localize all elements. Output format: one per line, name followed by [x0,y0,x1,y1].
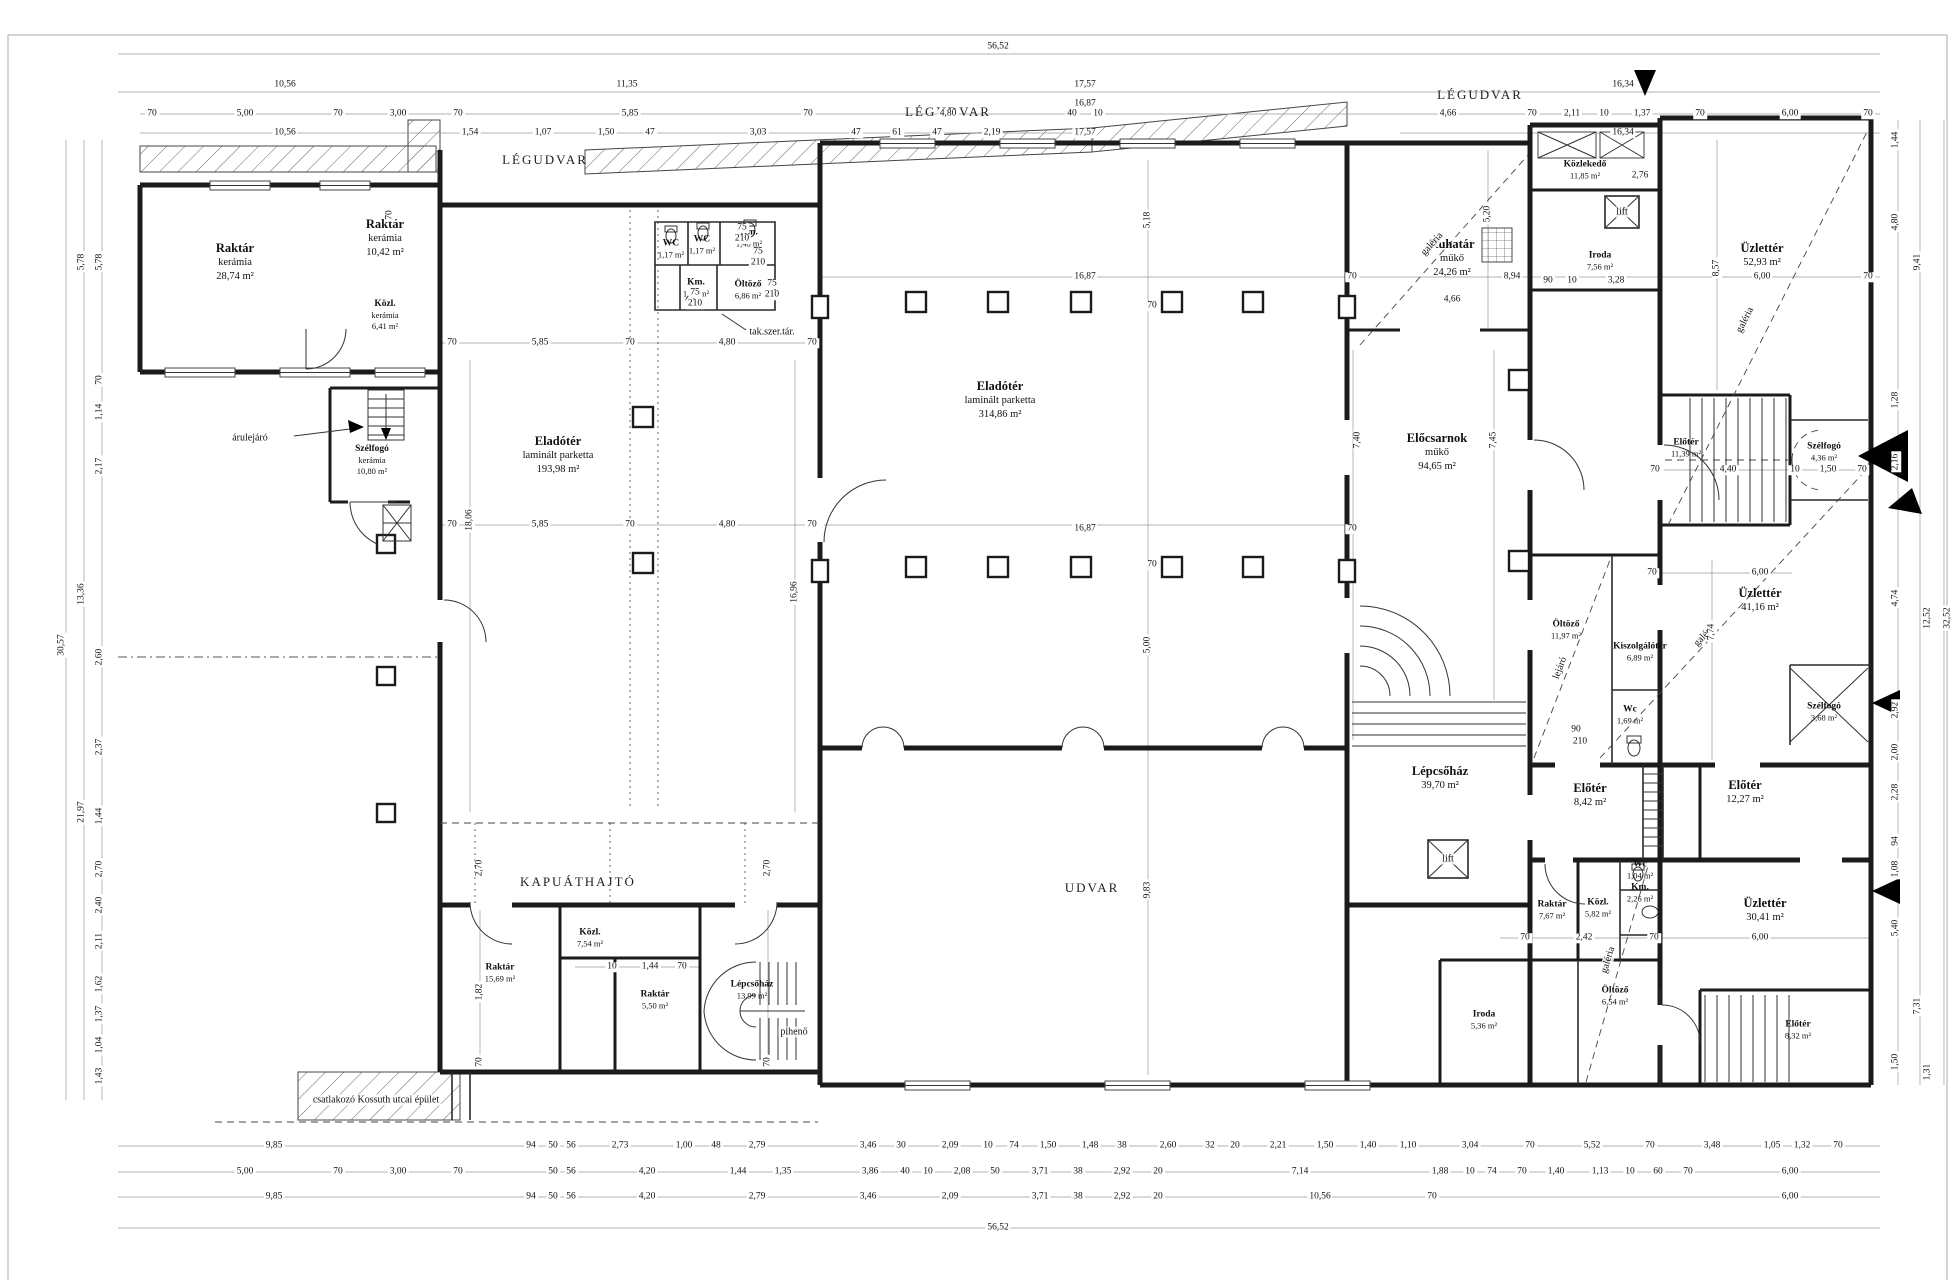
room-name: Közl. [577,926,603,938]
dimension-text: 5,52 [1582,1141,1603,1151]
room-label: Előtér12,27 m² [1726,777,1764,807]
room-name: Közl. [1585,896,1611,908]
dimension-text: 16,87 [1072,272,1097,282]
room-area: 8,42 m² [1573,796,1606,810]
dimension-text: 1,37 [1632,109,1653,119]
dimension-text: 70 [1861,272,1875,282]
dimension-text: 1,43 [95,1066,105,1087]
dimension-text: 1,37 [95,1004,105,1025]
room-name: Eladótér [965,378,1036,394]
dimension-text: 2,73 [610,1141,631,1151]
dimension-text: 5,78 [77,252,87,273]
room-label: Üzlettér52,93 m² [1740,240,1783,270]
room-label: Közlekedő11,85 m² [1564,158,1607,181]
dimension-text: 3,04 [1460,1141,1481,1151]
dimension-text: 5,18 [1143,210,1153,231]
room-name: Raktár [640,988,669,1000]
dimension-text: 1,32 [1792,1141,1813,1151]
room-area: 6,86 m² [735,291,762,302]
dimension-text: 10 [981,1141,995,1151]
dimension-text: 75 [688,288,702,298]
room-label: Raktár7,67 m² [1537,898,1566,921]
dimension-text: 10 [921,1167,935,1177]
dimension-text: 2,60 [95,647,105,668]
dimension-text: 70 [1647,933,1661,943]
room-name: Raktár [1537,898,1566,910]
room-label: Lépcsőház13,99 m² [731,978,774,1001]
dimension-text: 2,76 [1630,171,1651,181]
dimension-text: 70 [331,1167,345,1177]
room-area: 10,80 m² [355,466,389,477]
dimension-text: 1,10 [1398,1141,1419,1151]
dimension-text: 5,85 [530,338,551,348]
dimension-text: 10 [605,962,619,972]
room-name: Raktár [216,240,254,256]
dimension-text: 20 [1151,1167,1165,1177]
dimension-text: 20 [1228,1141,1242,1151]
dimension-text: 2,17 [95,456,105,477]
room-name: Előtér [1671,436,1701,448]
note-text: csatlakozó Kossuth utcai épület [311,1095,441,1106]
dimension-text: 32,52 [1943,605,1953,630]
dimension-text: 74 [1007,1141,1021,1151]
dimension-text: 70 [145,109,159,119]
dimension-text: 50 [988,1167,1002,1177]
room-label: Előtér8,42 m² [1573,780,1606,810]
zone-label: UDVAR [1065,880,1120,896]
dimension-text: 1,44 [640,962,661,972]
dimension-text: 70 [623,338,637,348]
dimension-text: 2,60 [1158,1141,1179,1151]
room-area: 5,36 m² [1471,1021,1497,1032]
dimension-text: 9,85 [264,1141,285,1151]
room-label: Öltöző6,54 m² [1602,984,1629,1007]
dimension-text: 1,40 [1546,1167,1567,1177]
dimension-text: 3,00 [388,1167,409,1177]
dimension-text: 38 [1071,1167,1085,1177]
dimension-text: 38 [1115,1141,1129,1151]
dimension-text: 70 [331,109,345,119]
note-text: lejáró [1550,654,1570,683]
dimension-text: 2,92 [1112,1167,1133,1177]
dimension-text: 6,00 [1780,1192,1801,1202]
dimension-text: 3,00 [388,109,409,119]
room-label: Wc1,04 m² [1627,858,1653,881]
room-label: Öltöző6,86 m² [735,278,762,301]
dimension-text: 70 [1643,1141,1657,1151]
dimension-text: 5,78 [95,252,105,273]
room-area: 24,26 m² [1429,266,1474,280]
dimension-text: 70 [1523,1141,1537,1151]
room-label: Előtér8,32 m² [1785,1018,1811,1041]
dimension-text: 50 [546,1192,560,1202]
dimension-text: 4,20 [637,1192,658,1202]
dimension-text: 3,03 [748,128,769,138]
dimension-text: 5,00 [1143,635,1153,656]
dimension-text: 5,00 [235,1167,256,1177]
dimension-text: 2,11 [1562,109,1582,119]
dimension-text: 50 [546,1141,560,1151]
room-material: kerámia [355,455,389,466]
room-area: 5,82 m² [1585,909,1611,920]
room-area: 314,86 m² [965,408,1036,422]
dimension-text: 1,48 [1080,1141,1101,1151]
dimension-text: 2,92 [1891,700,1901,721]
dimension-text: 2,19 [982,128,1003,138]
dimension-text: 6,00 [1780,109,1801,119]
dimension-text: 70 [475,1055,485,1069]
dimension-text: 3,46 [858,1192,879,1202]
dimension-text: 4,80 [1891,212,1901,233]
room-area: 28,74 m² [216,270,254,284]
dimension-text: 94 [524,1141,538,1151]
dimension-text: 70 [1345,272,1359,282]
dimension-text: 1,04 [95,1035,105,1056]
dimension-text: 1,13 [1590,1167,1611,1177]
dimension-text: 10 [1463,1167,1477,1177]
room-material: műkő [1429,252,1474,266]
room-label: Szélfogó3,68 m² [1807,700,1841,723]
dimension-text: 3,28 [1606,276,1627,286]
room-name: Előtér [1785,1018,1811,1030]
dimension-text: 16,87 [1072,524,1097,534]
room-name: Üzlettér [1740,240,1783,256]
room-area: 8,32 m² [1785,1031,1811,1042]
dimension-text: 56 [564,1167,578,1177]
room-label: Iroda5,36 m² [1471,1008,1497,1031]
room-label: Kiszolgálótér6,89 m² [1613,640,1667,663]
dimension-text: 70 [1345,524,1359,534]
room-name: Szélfogó [355,443,389,455]
room-label: Előcsarnokműkő94,65 m² [1407,430,1467,474]
dimension-text: 1,50 [1315,1141,1336,1151]
room-material: laminált parketta [523,449,594,463]
room-area: 2,26 m² [1627,894,1653,905]
dimension-text: 17,57 [1072,80,1097,90]
dimension-text: 10,56 [1307,1192,1332,1202]
dimension-text: 60 [1651,1167,1665,1177]
dimension-text: 1,40 [1358,1141,1379,1151]
room-label: Szélfogó4,36 m² [1807,440,1841,463]
dimension-text: 40 [898,1167,912,1177]
dimension-text: 11,35 [614,80,639,90]
room-area: 10,42 m² [366,246,404,260]
dimension-text: 2,40 [95,895,105,916]
dimension-text: 1,28 [1891,390,1901,411]
dimension-text: 47 [930,128,944,138]
dimension-text: 1,54 [460,128,481,138]
zone-label: LÉGUDVAR [1437,87,1523,103]
dimension-text: 2,00 [1891,742,1901,763]
dimension-text: 90 [1541,276,1555,286]
dimension-text: 1,62 [95,974,105,995]
dimension-text: 30,57 [57,632,67,657]
dimension-text: 6,00 [1750,933,1771,943]
room-material: kerámia [216,256,254,270]
dimension-text: 70 [451,1167,465,1177]
room-area: 94,65 m² [1407,460,1467,474]
dimension-text: 40 [1065,109,1079,119]
room-name: Előcsarnok [1407,430,1467,446]
room-label: Üzlettér41,16 m² [1738,585,1781,615]
dimension-text: 74 [1485,1167,1499,1177]
dimension-text: 3,48 [1702,1141,1723,1151]
dimension-text: 61 [890,128,904,138]
plan-labels: Raktárkerámia28,74 m²Raktárkerámia10,42 … [0,0,1955,1280]
room-label: Wc1,69 m² [1617,703,1643,726]
dimension-text: 4,80 [717,338,738,348]
dimension-text: 1,07 [533,128,554,138]
room-area: 6,89 m² [1613,653,1667,664]
note-text: pihenő [778,1027,809,1038]
dimension-text: 70 [1645,568,1659,578]
dimension-text: 16,34 [1610,80,1635,90]
dimension-text: 1,44 [1891,130,1901,151]
dimension-text: 38 [1071,1192,1085,1202]
dimension-text: 6,00 [1780,1167,1801,1177]
dimension-text: 3,71 [1030,1192,1051,1202]
dimension-text: 6,00 [1752,272,1773,282]
dimension-text: 56 [564,1192,578,1202]
dimension-text: 70 [1425,1192,1439,1202]
room-name: WC [658,237,684,249]
dimension-text: 56,52 [985,42,1010,52]
note-text: lift [1614,207,1630,218]
dimension-text: 10 [1623,1167,1637,1177]
room-area: 52,93 m² [1740,256,1783,270]
dimension-text: 210 [686,299,704,309]
dimension-text: 70 [445,338,459,348]
dimension-text: 47 [643,128,657,138]
dimension-text: 48 [709,1141,723,1151]
dimension-text: 4,66 [1438,109,1459,119]
room-label: Öltöző11,97 m² [1551,618,1581,641]
dimension-text: 70 [445,520,459,530]
room-label: Szélfogókerámia10,80 m² [355,443,389,477]
dimension-text: 21,97 [77,799,87,824]
dimension-text: 56,52 [985,1223,1010,1233]
room-name: Öltöző [1602,984,1629,996]
dimension-text: 9,85 [264,1192,285,1202]
dimension-text: 1,82 [475,982,485,1003]
room-name: Közl. [371,298,398,310]
dimension-text: 2,79 [747,1141,768,1151]
dimension-text: 1,88 [1430,1167,1451,1177]
dimension-text: 10 [1565,276,1579,286]
dimension-text: 70 [1693,109,1707,119]
dimension-text: 2,09 [940,1141,961,1151]
room-name: Üzlettér [1738,585,1781,601]
room-name: Öltöző [735,278,762,290]
dimension-text: 70 [1861,109,1875,119]
room-area: 6,54 m² [1602,997,1629,1008]
dimension-text: 1,50 [1891,1052,1901,1073]
dimension-text: 1,14 [95,402,105,423]
room-area: 7,67 m² [1537,911,1566,922]
room-material: kerámia [371,310,398,321]
dimension-text: 47 [849,128,863,138]
dimension-text: 70 [1145,560,1159,570]
room-area: 30,41 m² [1743,911,1786,925]
dimension-text: 7,74 [1707,622,1717,643]
room-name: Wc [1627,858,1653,870]
zone-label: LÉGUDVAR [502,152,588,168]
dimension-text: 2,21 [1268,1141,1289,1151]
dimension-text: 2,70 [95,859,105,880]
room-area: 1,69 m² [1617,716,1643,727]
room-name: Kiszolgálótér [1613,640,1667,652]
dimension-text: 4,40 [1718,465,1739,475]
dimension-text: 94 [524,1192,538,1202]
dimension-text: 7,40 [1353,430,1363,451]
dimension-text: 70 [1515,1167,1529,1177]
dimension-text: 10 [1091,109,1105,119]
room-area: 11,97 m² [1551,631,1581,642]
room-name: Lépcsőház [1412,763,1468,779]
room-label: Közl.5,82 m² [1585,896,1611,919]
room-area: 7,54 m² [577,939,603,950]
room-label: Eladótérlaminált parketta314,86 m² [965,378,1036,422]
dimension-text: 210 [749,258,767,268]
dimension-text: 70 [801,109,815,119]
room-name: Szélfogó [1807,700,1841,712]
dimension-text: 20 [1151,1192,1165,1202]
room-area: 6,41 m² [371,321,398,332]
dimension-text: 6,00 [1750,568,1771,578]
dimension-text: 210 [763,290,781,300]
dimension-text: 70 [1525,109,1539,119]
room-name: Üzlettér [1743,895,1786,911]
dimension-text: 70 [385,208,395,222]
dimension-text: 75 [735,223,749,233]
dimension-text: 2,09 [940,1192,961,1202]
dimension-text: 10,56 [272,128,297,138]
dimension-text: 50 [546,1167,560,1177]
dimension-text: 70 [1681,1167,1695,1177]
dimension-text: 2,92 [1112,1192,1133,1202]
dimension-text: 2,28 [1891,782,1901,803]
room-name: Wc [1617,703,1643,715]
dimension-text: 70 [1831,1141,1845,1151]
room-label: Előtér11,39 m² [1671,436,1701,459]
room-label: Raktár15,69 m² [485,961,515,984]
room-area: 1,17 m² [689,246,715,257]
dimension-text: 5,00 [235,109,256,119]
dimension-text: 2,79 [747,1192,768,1202]
dimension-text: 17,57 [1072,128,1097,138]
dimension-text: 8,94 [1502,272,1523,282]
room-name: Raktár [485,961,515,973]
dimension-text: 13,36 [77,581,87,606]
dimension-text: 70 [763,1055,773,1069]
note-text: galéria [1733,304,1757,337]
room-name: Szélfogó [1807,440,1841,452]
dimension-text: 10,56 [272,80,297,90]
room-area: 5,50 m² [640,1001,669,1012]
room-label: WC1,17 m² [689,233,715,256]
room-label: Közl.kerámia6,41 m² [371,298,398,332]
room-material: műkő [1407,446,1467,460]
room-area: 39,70 m² [1412,779,1468,793]
room-label: Raktár5,50 m² [640,988,669,1011]
room-material: laminált parketta [965,394,1036,408]
dimension-text: 70 [805,338,819,348]
dimension-text: 8,57 [1712,258,1722,279]
dimension-text: 4,20 [637,1167,658,1177]
room-name: Iroda [1587,249,1613,261]
dimension-text: 16,34 [1610,128,1635,138]
room-area: 193,98 m² [523,463,594,477]
dimension-text: 1,05 [1762,1141,1783,1151]
dimension-text: 70 [1145,301,1159,311]
dimension-text: 94 [1891,834,1901,848]
room-label: Lépcsőház39,70 m² [1412,763,1468,793]
dimension-text: 210 [733,234,751,244]
dimension-text: 75 [765,279,779,289]
room-name: Iroda [1471,1008,1497,1020]
dimension-text: 70 [95,373,105,387]
dimension-text: 18,06 [465,507,475,532]
zone-label: KAPUÁTHAJTÓ [520,874,636,890]
dimension-text: 32 [1203,1141,1217,1151]
dimension-text: 7,14 [1290,1167,1311,1177]
room-area: 4,36 m² [1807,453,1841,464]
room-name: Előtér [1726,777,1764,793]
dimension-text: 56 [564,1141,578,1151]
room-label: Eladótérlaminált parketta193,98 m² [523,433,594,477]
dimension-text: 2,37 [95,737,105,758]
dimension-text: 1,31 [1923,1062,1933,1083]
room-area: 11,85 m² [1564,171,1607,182]
dimension-text: 1,44 [95,806,105,827]
room-label: Km.2,26 m² [1627,881,1653,904]
dimension-text: 3,71 [1030,1167,1051,1177]
room-name: Lépcsőház [731,978,774,990]
room-area: 7,56 m² [1587,262,1613,273]
dimension-text: 2,08 [952,1167,973,1177]
room-area: 11,39 m² [1671,449,1701,460]
room-area: 41,16 m² [1738,601,1781,615]
dimension-text: 70 [623,520,637,530]
dimension-text: 10 [1597,109,1611,119]
dimension-text: 12,52 [1923,605,1933,630]
dimension-text: 1,44 [728,1167,749,1177]
dimension-text: 5,20 [1483,204,1493,225]
dimension-text: 5,85 [530,520,551,530]
room-area: 1,17 m² [658,250,684,261]
room-name: WC [689,233,715,245]
room-area: 12,27 m² [1726,793,1764,807]
dimension-text: 2,42 [1574,933,1595,943]
dimension-text: 7,31 [1913,996,1923,1017]
dimension-text: 75 [751,247,765,257]
dimension-text: 7,45 [1489,430,1499,451]
room-area: 1,04 m² [1627,871,1653,882]
dimension-text: 2,16 [1891,452,1901,473]
room-label: Raktárkerámia28,74 m² [216,240,254,284]
dimension-text: 1,35 [773,1167,794,1177]
dimension-text: 210 [1571,737,1589,747]
room-name: Előtér [1573,780,1606,796]
dimension-text: 5,85 [620,109,641,119]
dimension-text: 4,80 [938,109,959,119]
dimension-text: 1,50 [596,128,617,138]
dimension-text: 16,96 [790,579,800,604]
dimension-text: 2,70 [475,858,485,879]
dimension-text: 1,50 [1818,465,1839,475]
dimension-text: 2,70 [763,858,773,879]
room-name: Közlekedő [1564,158,1607,170]
